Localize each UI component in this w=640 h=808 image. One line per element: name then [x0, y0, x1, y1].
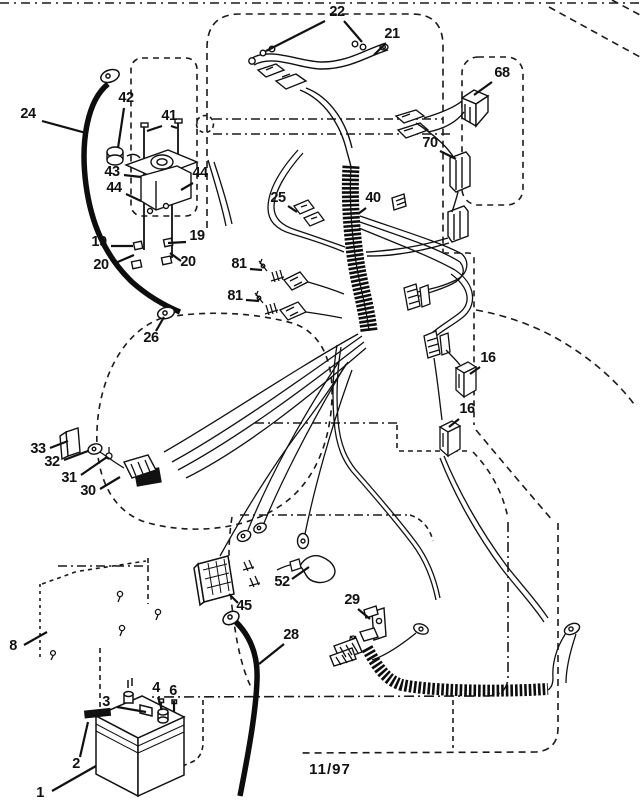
callout-leader-81 [246, 300, 259, 301]
callout-30: 30 [80, 483, 96, 499]
callout-8: 8 [9, 638, 17, 654]
callout-31: 31 [61, 470, 77, 486]
callout-leader-68 [474, 82, 492, 95]
callout-4: 4 [152, 680, 160, 696]
callout-19: 19 [91, 234, 107, 250]
callout-42: 42 [118, 90, 134, 106]
callout-leader-41 [171, 126, 177, 128]
callout-40: 40 [365, 190, 381, 206]
callout-21: 21 [384, 26, 400, 42]
wiring-diagram-art: 2221682442417043444425401919202081812616… [0, 0, 640, 808]
callout-leader-22 [266, 21, 325, 51]
callout-19: 19 [189, 228, 205, 244]
callout-leader-30 [100, 477, 120, 489]
callout-leader-31 [81, 457, 107, 475]
callout-leader-28 [259, 644, 284, 664]
callout-28: 28 [283, 627, 299, 643]
chassis-dashed-outlines [0, 0, 640, 779]
revision-date: 11/97 [298, 761, 362, 778]
callout-26: 26 [143, 330, 159, 346]
callout-24: 24 [20, 106, 36, 122]
coiled-cable [367, 648, 548, 691]
callout-70: 70 [422, 135, 438, 151]
callout-43: 43 [104, 164, 120, 180]
battery-cable-28 [221, 609, 257, 796]
callout-44: 44 [192, 165, 208, 181]
callout-leader-2 [80, 722, 88, 757]
callout-2: 2 [72, 756, 80, 772]
callout-25: 25 [270, 190, 286, 206]
callout-22: 22 [329, 4, 345, 20]
callout-81: 81 [231, 256, 247, 272]
callout-leader-8 [24, 632, 47, 645]
callout-81: 81 [227, 288, 243, 304]
callout-leader-44 [126, 194, 141, 201]
bottom-wires [194, 345, 581, 690]
callout-68: 68 [494, 65, 510, 81]
callout-16: 16 [480, 350, 496, 366]
callout-52: 52 [274, 574, 290, 590]
right-loops [359, 216, 548, 622]
diagram-canvas: 2221682442417043444425401919202081812616… [0, 0, 640, 808]
callout-3: 3 [102, 694, 110, 710]
callout-41: 41 [161, 108, 177, 124]
frame-parts [51, 591, 161, 660]
callout-leader-19 [168, 242, 186, 243]
callout-leader-43 [124, 175, 141, 177]
callout-32: 32 [44, 454, 60, 470]
callout-leader-24 [42, 121, 86, 133]
callout-leader-81 [250, 269, 262, 270]
callout-20: 20 [180, 254, 196, 270]
callout-1: 1 [36, 785, 44, 801]
callout-44: 44 [106, 180, 122, 196]
callout-leader-41 [147, 126, 162, 131]
callout-leader-22 [344, 21, 362, 42]
callout-6: 6 [169, 683, 177, 699]
callout-leader-42 [118, 108, 124, 148]
callout-29: 29 [344, 592, 360, 608]
callout-45: 45 [236, 598, 252, 614]
callout-16: 16 [459, 401, 475, 417]
callout-20: 20 [93, 257, 109, 273]
hood-harness [249, 41, 388, 167]
